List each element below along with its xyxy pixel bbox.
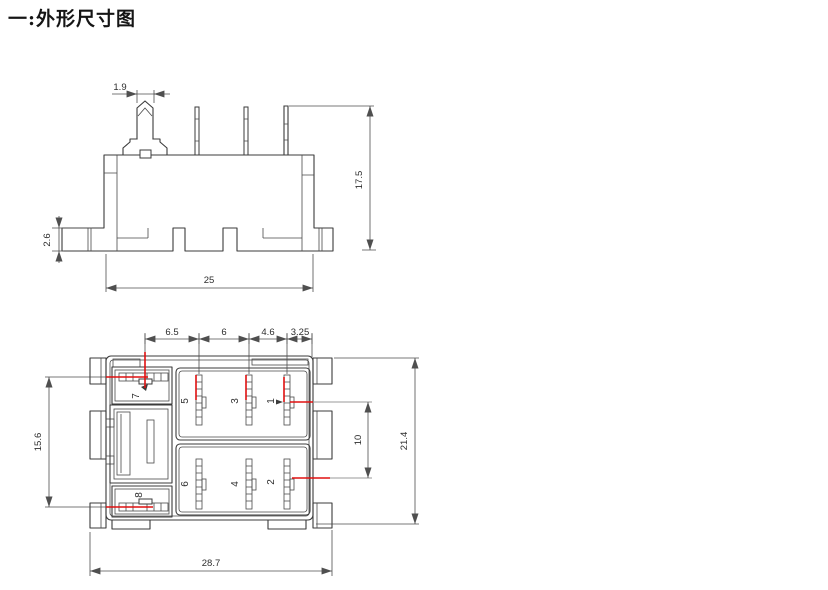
pin-label-5: 5 <box>180 398 191 404</box>
pin-label-6: 6 <box>180 481 191 487</box>
dim-overall-width: 28.7 <box>202 558 221 569</box>
pin-plate <box>284 106 288 155</box>
pin-label-1: 1 <box>266 398 277 404</box>
side-bumps-right <box>313 358 332 528</box>
compartment-lever <box>110 405 172 483</box>
pin6-slot <box>196 459 202 509</box>
pin4-slot <box>246 459 252 509</box>
dim-overall-height: 17.5 <box>354 171 365 190</box>
dimension-drawing: 1.9 17.5 2.6 25 <box>0 0 828 590</box>
dim-flange-height: 2.6 <box>42 233 53 246</box>
pin3-slot <box>246 375 252 425</box>
dim-base-width: 25 <box>204 275 215 286</box>
dim-25-ext <box>106 254 313 292</box>
pin1-leader-arrow <box>276 400 283 405</box>
compartment-pin8 <box>112 486 172 517</box>
pin2-slot <box>284 459 290 509</box>
dim-15-6-ext <box>45 377 106 507</box>
lever-slot <box>147 420 154 463</box>
dim-pin-width: 1.9 <box>113 82 126 93</box>
dim-row-spacing: 10 <box>353 435 364 446</box>
front-view-dimensions: 1.9 17.5 2.6 25 <box>42 82 376 292</box>
dim-spacing-b: 6 <box>221 327 226 338</box>
dim-body-depth: 21.4 <box>399 432 410 451</box>
foot-right <box>268 520 306 529</box>
pin-thin-left <box>195 107 199 155</box>
pin-slots-top-row <box>196 375 294 425</box>
dim-left-row-span: 15.6 <box>33 433 44 452</box>
body-inner-walls <box>88 155 322 251</box>
pin-slots-bottom-row <box>196 459 294 509</box>
pin-label-8: 8 <box>134 492 145 498</box>
pin1-slot <box>284 375 290 425</box>
front-view <box>62 101 333 251</box>
pin-label-2: 2 <box>266 479 277 485</box>
pin5-slot <box>196 375 202 425</box>
faston-terminal <box>137 101 153 139</box>
faston-notch <box>138 108 152 116</box>
dim-spacing-d: 3.25 <box>291 327 310 338</box>
dim-spacing-c: 4.6 <box>261 327 274 338</box>
pin-label-4: 4 <box>230 481 241 487</box>
bottom-view: 7 8 5 3 1 6 4 2 <box>90 356 332 529</box>
faston-base-notch <box>140 150 151 158</box>
dim-spacing-a: 6.5 <box>165 327 178 338</box>
bottom-view-dimensions: 6.5 6 4.6 3.25 15.6 <box>33 327 419 576</box>
pin-plate-ticks <box>284 124 288 140</box>
dim-2-6-ext <box>52 228 92 251</box>
compartment-pin7 <box>112 367 172 404</box>
dim-28-7-ext <box>90 530 332 576</box>
pin-label-3: 3 <box>230 398 241 404</box>
relay-body-outline <box>62 155 333 251</box>
pin-thin-right <box>244 107 248 155</box>
drawing-canvas: 一:外形尺寸图 <box>0 0 828 590</box>
pin-label-7: 7 <box>131 393 142 399</box>
foot-left <box>112 520 150 529</box>
